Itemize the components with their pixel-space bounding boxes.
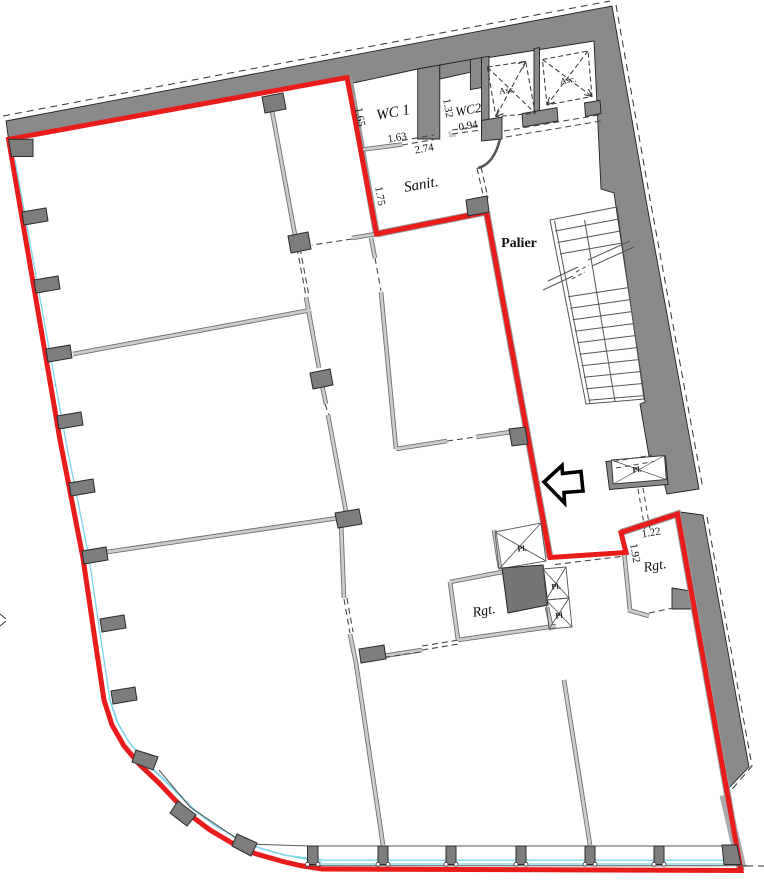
svg-text:Pl.: Pl. <box>517 544 527 554</box>
svg-text:Palier: Palier <box>501 236 537 251</box>
svg-text:WC2: WC2 <box>454 100 483 119</box>
svg-text:Asc.: Asc. <box>559 74 577 87</box>
svg-text:1.22: 1.22 <box>641 525 662 540</box>
svg-text:1.63: 1.63 <box>387 130 409 145</box>
svg-text:WC 1: WC 1 <box>375 102 411 124</box>
svg-text:Sanit.: Sanit. <box>403 174 440 196</box>
svg-text:1.92: 1.92 <box>627 543 642 564</box>
svg-text:Pl: Pl <box>555 611 564 621</box>
svg-text:Rgt.: Rgt. <box>641 557 667 576</box>
svg-text:0.94: 0.94 <box>458 118 480 133</box>
svg-text:2.74: 2.74 <box>414 141 436 156</box>
svg-text:Asc.: Asc. <box>498 84 516 97</box>
svg-text:Pl.: Pl. <box>551 582 561 592</box>
svg-text:Pl.: Pl. <box>632 465 642 475</box>
svg-text:Rgt.: Rgt. <box>470 602 496 621</box>
svg-text:1.32: 1.32 <box>440 98 455 119</box>
